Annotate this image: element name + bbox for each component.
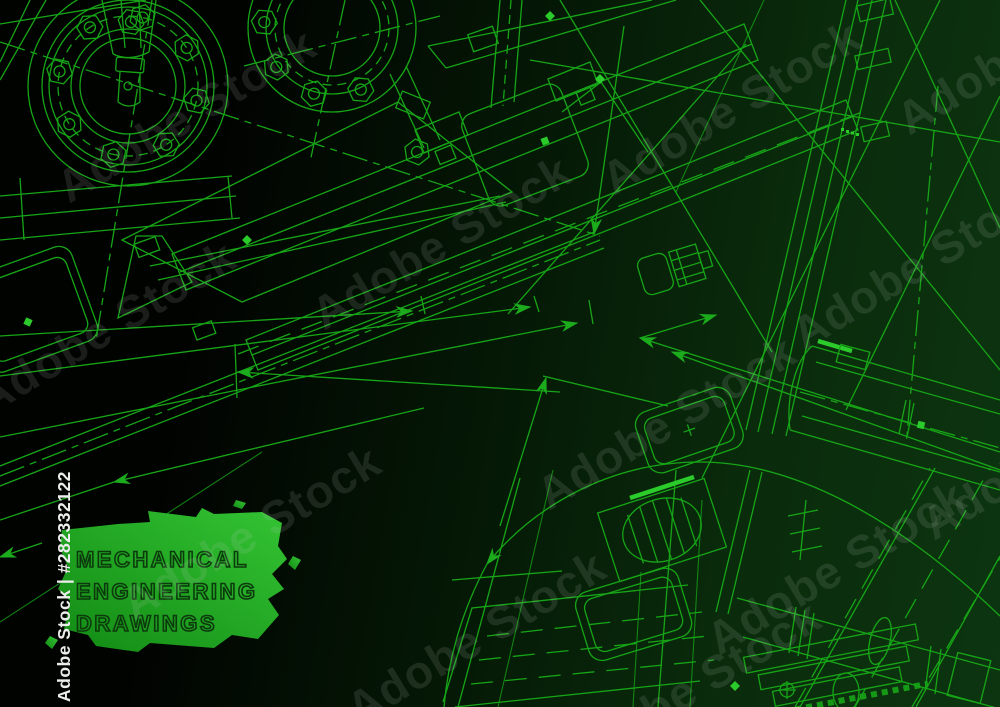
bolt-assembly — [636, 239, 716, 296]
blueprint-drawing: MECHANICAL ENGINEERING DRAWINGS — [0, 0, 1000, 707]
flange-top-centre — [244, 0, 440, 167]
trapezoid-plate — [118, 102, 512, 318]
shaft — [716, 0, 893, 614]
base-plate-left — [0, 176, 240, 240]
label-line-3: DRAWINGS — [76, 611, 217, 636]
label-line-2: ENGINEERING — [76, 579, 258, 604]
dimension-arrows — [0, 26, 1000, 557]
brush-label: MECHANICAL ENGINEERING DRAWINGS — [45, 500, 301, 652]
stock-image-canvas: MECHANICAL ENGINEERING DRAWINGS Adobe St… — [0, 0, 1000, 707]
knurled-knob — [598, 477, 727, 582]
flange-top-left — [0, 0, 600, 340]
bracket-left — [0, 237, 216, 376]
cylinder-assembly — [789, 341, 1000, 490]
watermark-credit: Adobe Stock | #282332122 — [54, 471, 75, 702]
beam-upper — [172, 24, 758, 290]
plate-dashed — [443, 585, 714, 707]
label-line-1: MECHANICAL — [76, 547, 249, 572]
